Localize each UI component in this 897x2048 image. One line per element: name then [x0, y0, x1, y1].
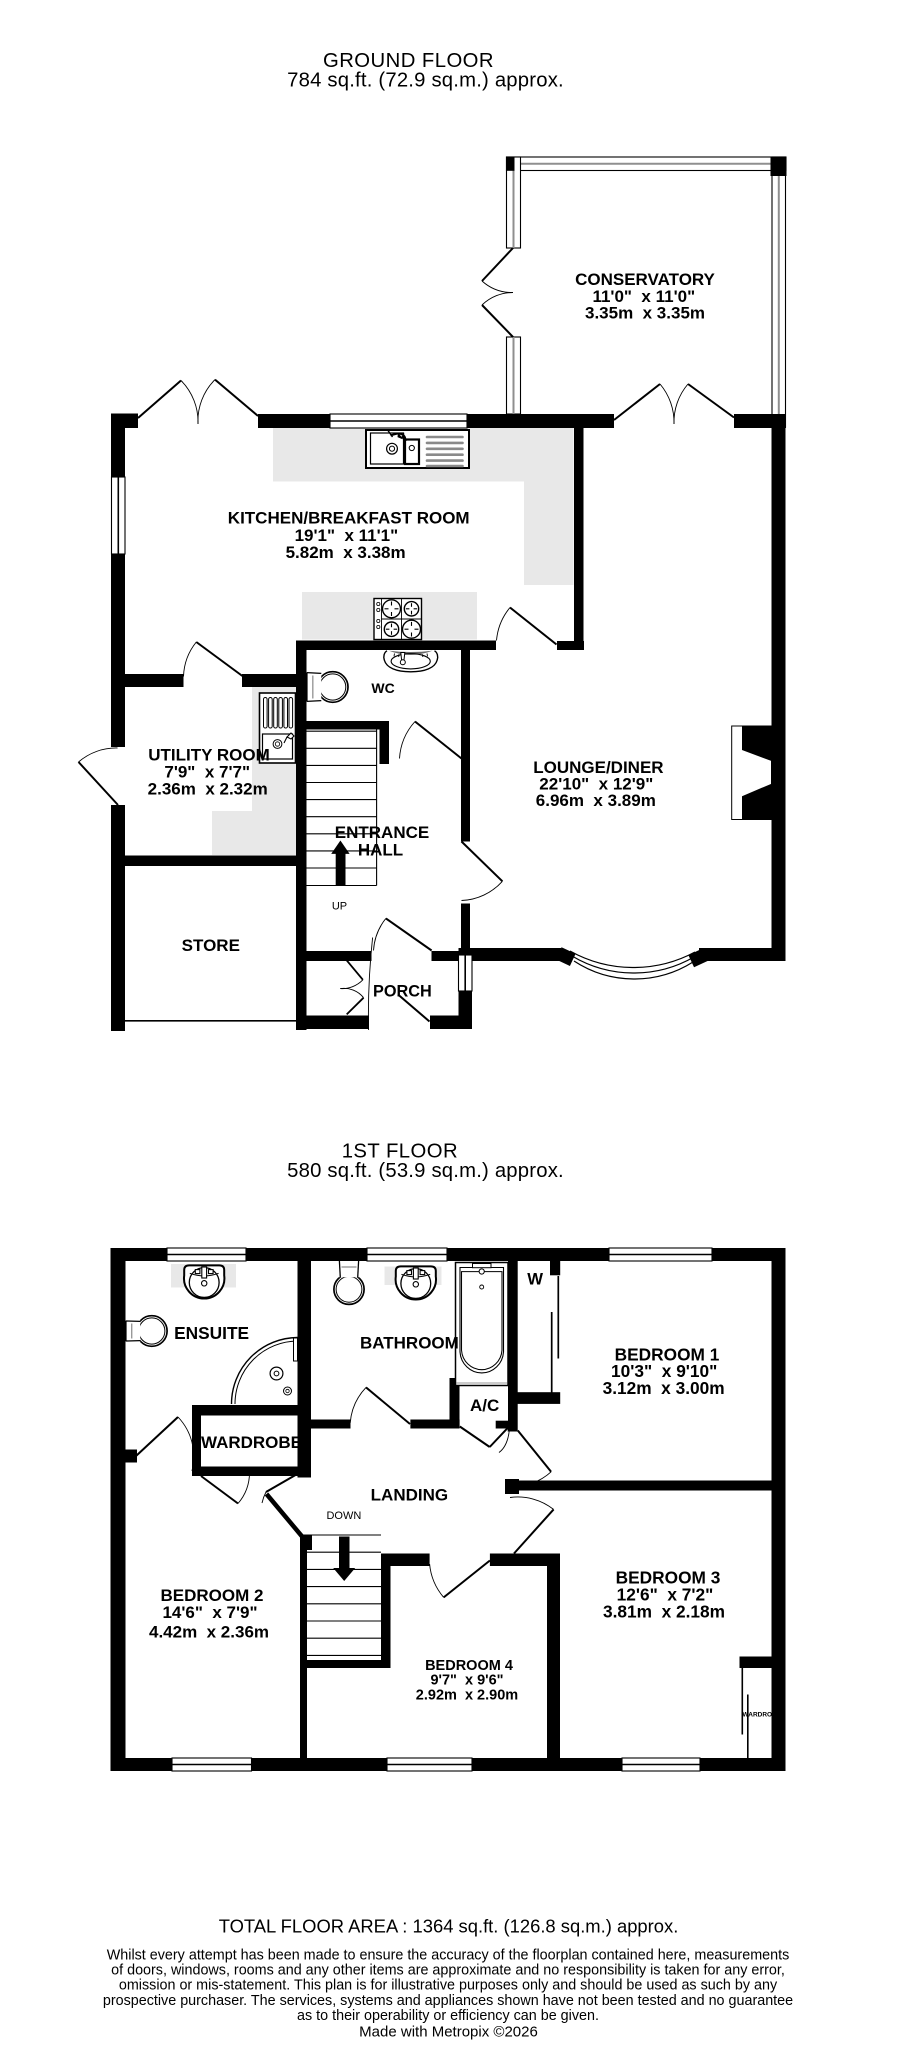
- svg-text:ENSUITE: ENSUITE: [174, 1323, 249, 1343]
- svg-text:4.42m x 2.36m: 4.42m x 2.36m: [149, 1623, 269, 1642]
- svg-text:STORE: STORE: [182, 936, 240, 955]
- svg-text:KITCHEN/BREAKFAST ROOM: KITCHEN/BREAKFAST ROOM: [228, 509, 470, 528]
- svg-text:5.82m x 3.38m: 5.82m x 3.38m: [286, 543, 406, 562]
- svg-text:of doors, windows, rooms and a: of doors, windows, rooms and any other i…: [111, 1963, 785, 1979]
- svg-text:LANDING: LANDING: [371, 1486, 448, 1505]
- svg-text:2.36m x 2.32m: 2.36m x 2.32m: [148, 780, 268, 799]
- svg-text:9'7" x 9'6": 9'7" x 9'6": [430, 1673, 503, 1689]
- svg-text:580 sq.ft. (53.9 sq.m.) approx: 580 sq.ft. (53.9 sq.m.) approx.: [287, 1160, 564, 1182]
- svg-text:UP: UP: [332, 901, 347, 913]
- svg-text:A/C: A/C: [470, 1396, 499, 1415]
- svg-text:Made with Metropix ©2026: Made with Metropix ©2026: [359, 2024, 538, 2041]
- svg-text:ENTRANCE: ENTRANCE: [335, 823, 429, 842]
- svg-text:WARDRO: WARDRO: [743, 1712, 773, 1719]
- svg-text:3.35m x 3.35m: 3.35m x 3.35m: [585, 304, 705, 323]
- svg-text:3.81m x 2.18m: 3.81m x 2.18m: [603, 1602, 725, 1622]
- svg-text:W: W: [527, 1270, 543, 1289]
- svg-text:DOWN: DOWN: [326, 1510, 361, 1522]
- svg-text:omission or mis-statement. Thi: omission or mis-statement. This plan is …: [119, 1978, 778, 1994]
- svg-text:6.96m x 3.89m: 6.96m x 3.89m: [536, 791, 656, 810]
- svg-text:BATHROOM: BATHROOM: [360, 1334, 459, 1353]
- svg-text:Whilst every attempt has been: Whilst every attempt has been made to en…: [107, 1947, 790, 1963]
- svg-text:14'6" x 7'9": 14'6" x 7'9": [162, 1603, 257, 1622]
- svg-text:3.12m x 3.00m: 3.12m x 3.00m: [603, 1378, 725, 1398]
- svg-text:WARDROBE: WARDROBE: [201, 1433, 302, 1452]
- svg-text:TOTAL FLOOR AREA : 1364 sq.ft.: TOTAL FLOOR AREA : 1364 sq.ft. (126.8 sq…: [219, 1916, 679, 1937]
- svg-text:PORCH: PORCH: [373, 983, 432, 1001]
- svg-text:784 sq.ft. (72.9 sq.m.) approx: 784 sq.ft. (72.9 sq.m.) approx.: [287, 70, 564, 92]
- svg-text:WC: WC: [371, 680, 394, 696]
- svg-text:prospective purchaser. The ser: prospective purchaser. The services, sys…: [103, 1993, 793, 2009]
- svg-text:HALL: HALL: [358, 841, 403, 860]
- svg-text:2.92m x 2.90m: 2.92m x 2.90m: [416, 1688, 518, 1704]
- svg-text:as to their operability or eff: as to their operability or efficiency ca…: [297, 2008, 599, 2024]
